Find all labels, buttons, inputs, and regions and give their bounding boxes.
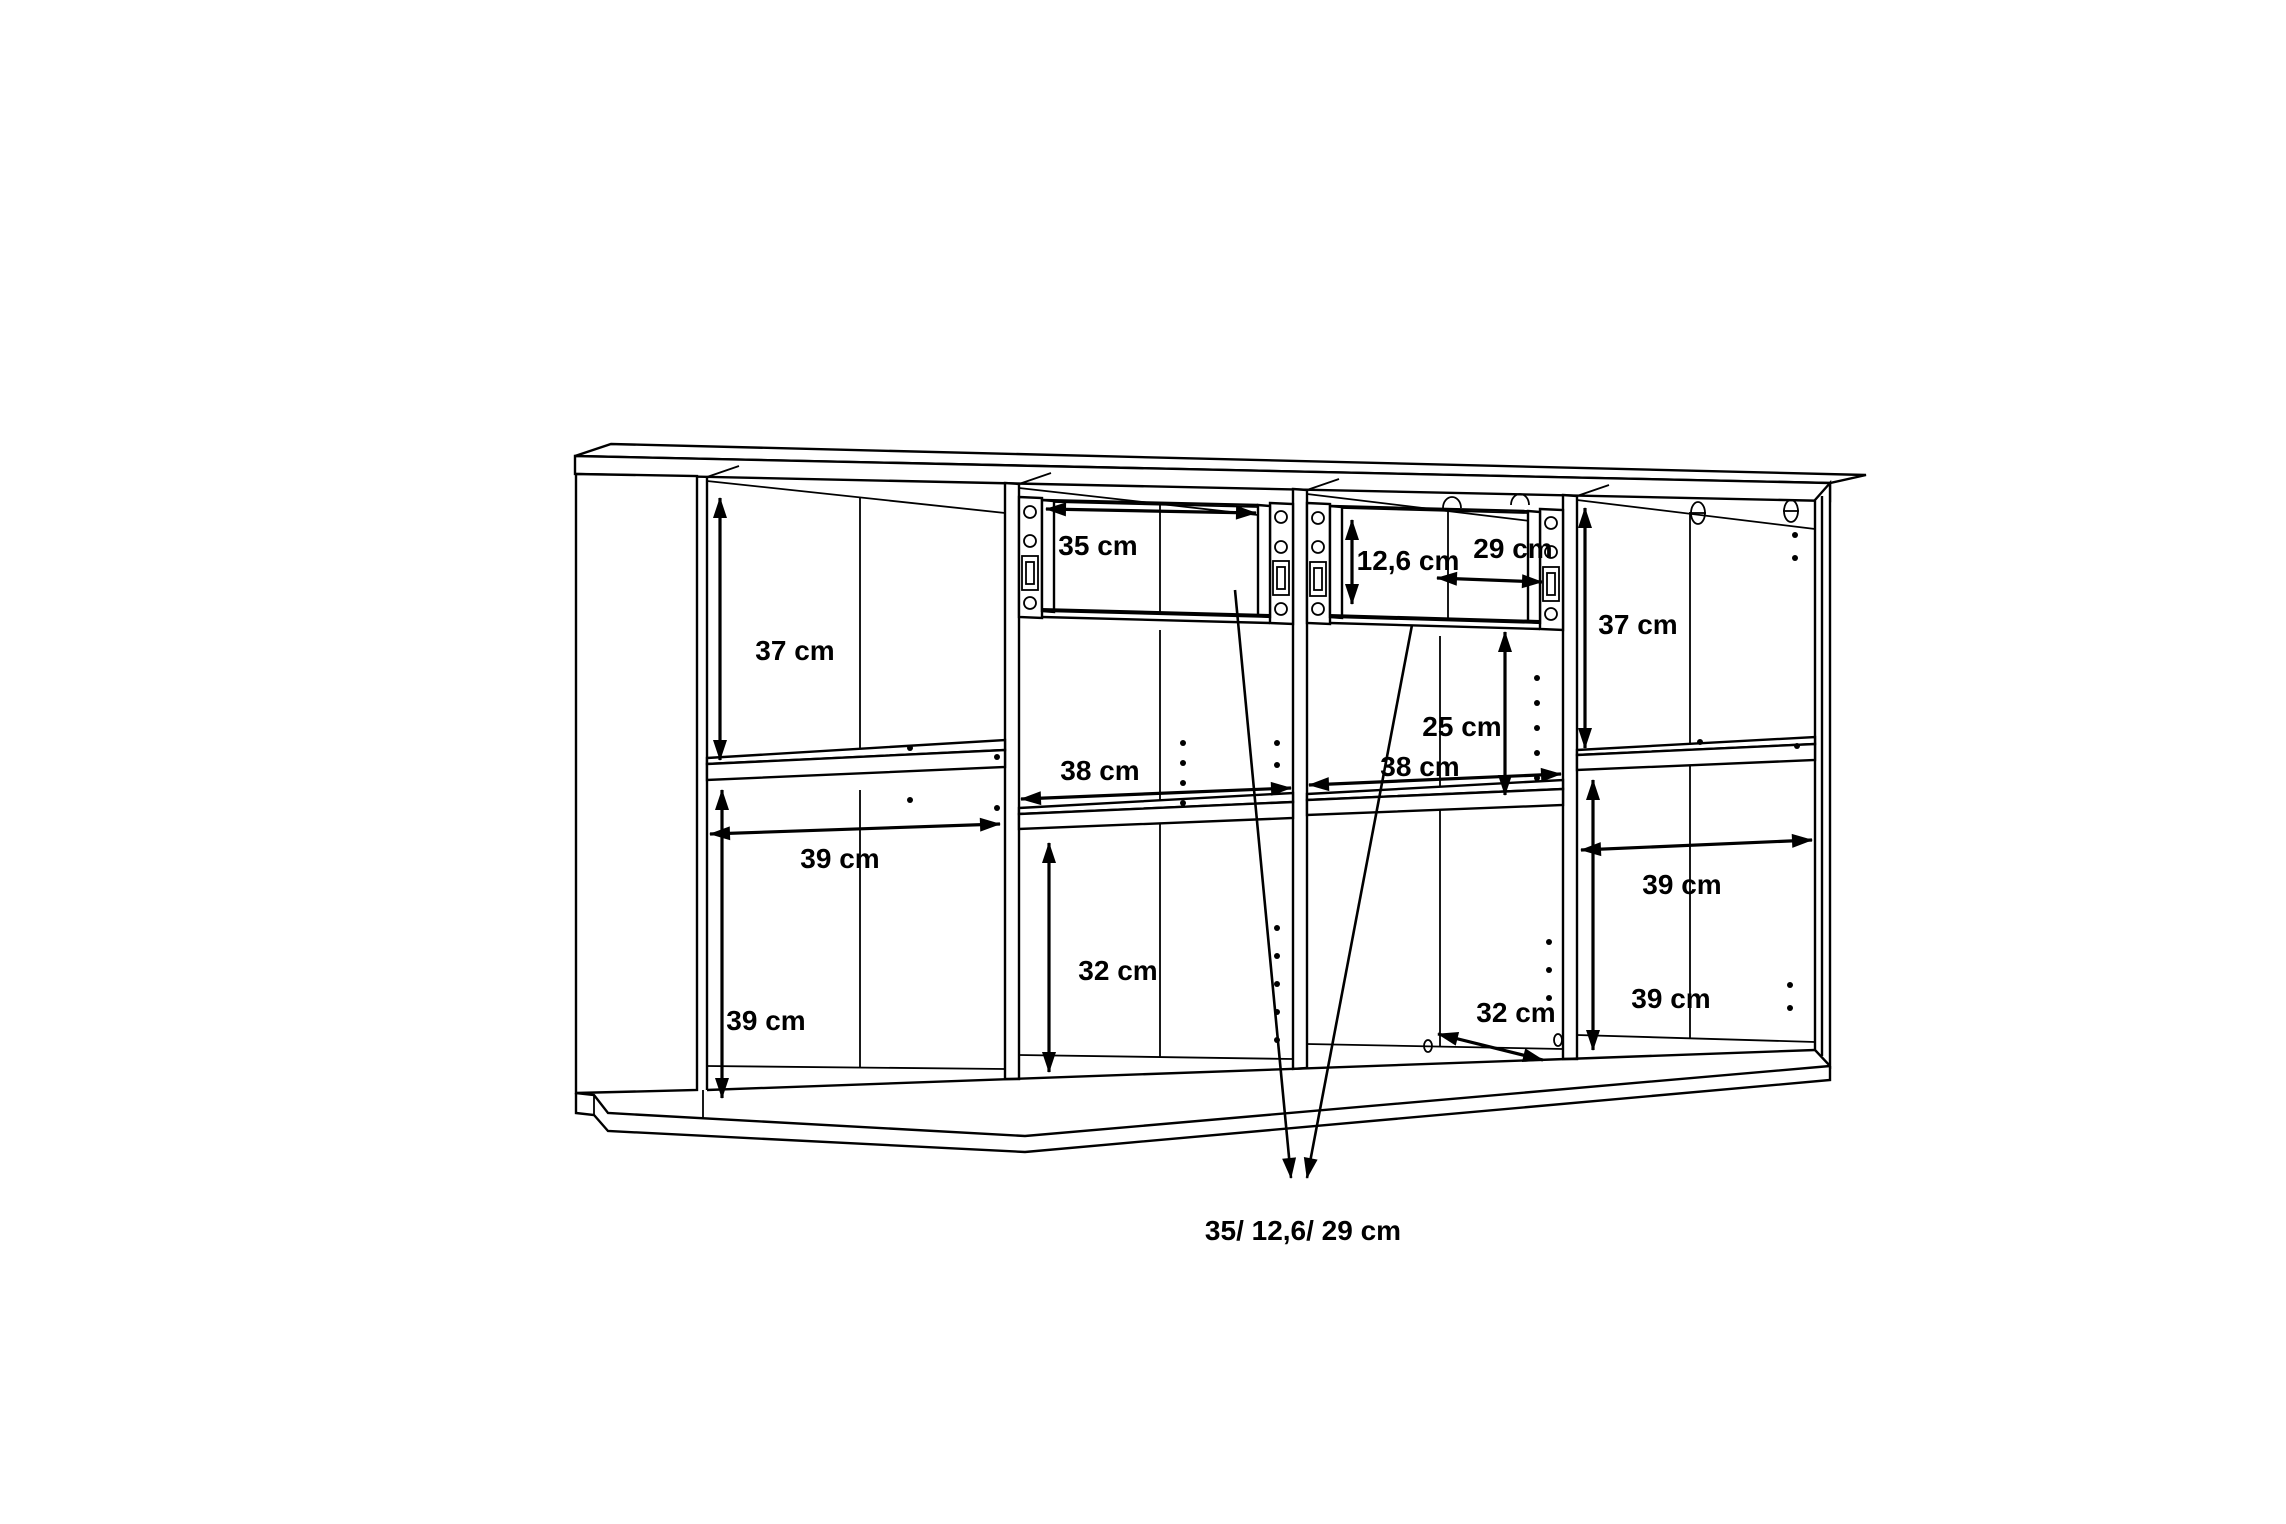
dim-mid-right-width: 38 cm bbox=[1309, 751, 1561, 785]
drawer-slide-right bbox=[1270, 503, 1293, 624]
shelf-mid-right bbox=[1307, 780, 1563, 815]
hanger-hook-cutouts bbox=[1443, 494, 1529, 508]
dim-label: 39 cm bbox=[1642, 869, 1721, 900]
bottom-board bbox=[576, 1050, 1830, 1152]
drawer-summary-label: 35/ 12,6/ 29 cm bbox=[1205, 1215, 1401, 1246]
drawer-slide-right bbox=[1540, 509, 1563, 630]
dim-label: 25 cm bbox=[1422, 711, 1501, 742]
dim-label: 32 cm bbox=[1476, 997, 1555, 1028]
dim-label: 37 cm bbox=[1598, 609, 1677, 640]
dim-right-width: 39 cm bbox=[1581, 840, 1812, 900]
furniture-dimension-drawing: 37 cm 39 cm 39 cm 35 cm 12,6 cm 29 cm 38… bbox=[0, 0, 2286, 1524]
dim-left-top-height: 37 cm bbox=[720, 498, 835, 760]
dim-mid-right-depth: 32 cm bbox=[1438, 997, 1556, 1060]
top-board bbox=[575, 444, 1866, 501]
dim-label: 38 cm bbox=[1380, 751, 1459, 782]
dim-label: 39 cm bbox=[1631, 983, 1710, 1014]
dim-label: 29 cm bbox=[1473, 533, 1552, 564]
right-side-panel bbox=[1815, 483, 1830, 1066]
drawer-slide-left bbox=[1307, 503, 1330, 624]
dim-right-top-height: 37 cm bbox=[1585, 508, 1678, 748]
dim-left-bottom-height: 39 cm bbox=[722, 790, 806, 1098]
dim-drawer2-height: 12,6 cm bbox=[1352, 520, 1459, 604]
shelf-right bbox=[1577, 737, 1815, 770]
drawer-slide-left bbox=[1019, 497, 1042, 618]
dim-label: 32 cm bbox=[1078, 955, 1157, 986]
diagram-page: 37 cm 39 cm 39 cm 35 cm 12,6 cm 29 cm 38… bbox=[0, 0, 2286, 1524]
dim-drawer1-width: 35 cm bbox=[1046, 509, 1256, 561]
interior-floor-back-lines bbox=[707, 1035, 1815, 1069]
left-side-panel bbox=[576, 474, 707, 1093]
dim-right-bottom-height: 39 cm bbox=[1593, 780, 1711, 1050]
dim-label: 39 cm bbox=[726, 1005, 805, 1036]
drawer-summary-pointers: 35/ 12,6/ 29 cm bbox=[1205, 590, 1412, 1246]
dim-label: 37 cm bbox=[755, 635, 834, 666]
dim-label: 38 cm bbox=[1060, 755, 1139, 786]
dim-label: 12,6 cm bbox=[1357, 545, 1460, 576]
dim-label: 39 cm bbox=[800, 843, 879, 874]
dim-label: 35 cm bbox=[1058, 530, 1137, 561]
dim-left-width: 39 cm bbox=[710, 824, 1000, 874]
cabinet-carcass bbox=[575, 444, 1866, 1152]
dim-mid-left-bottom-height: 32 cm bbox=[1049, 843, 1158, 1072]
shelf-left bbox=[707, 740, 1005, 780]
